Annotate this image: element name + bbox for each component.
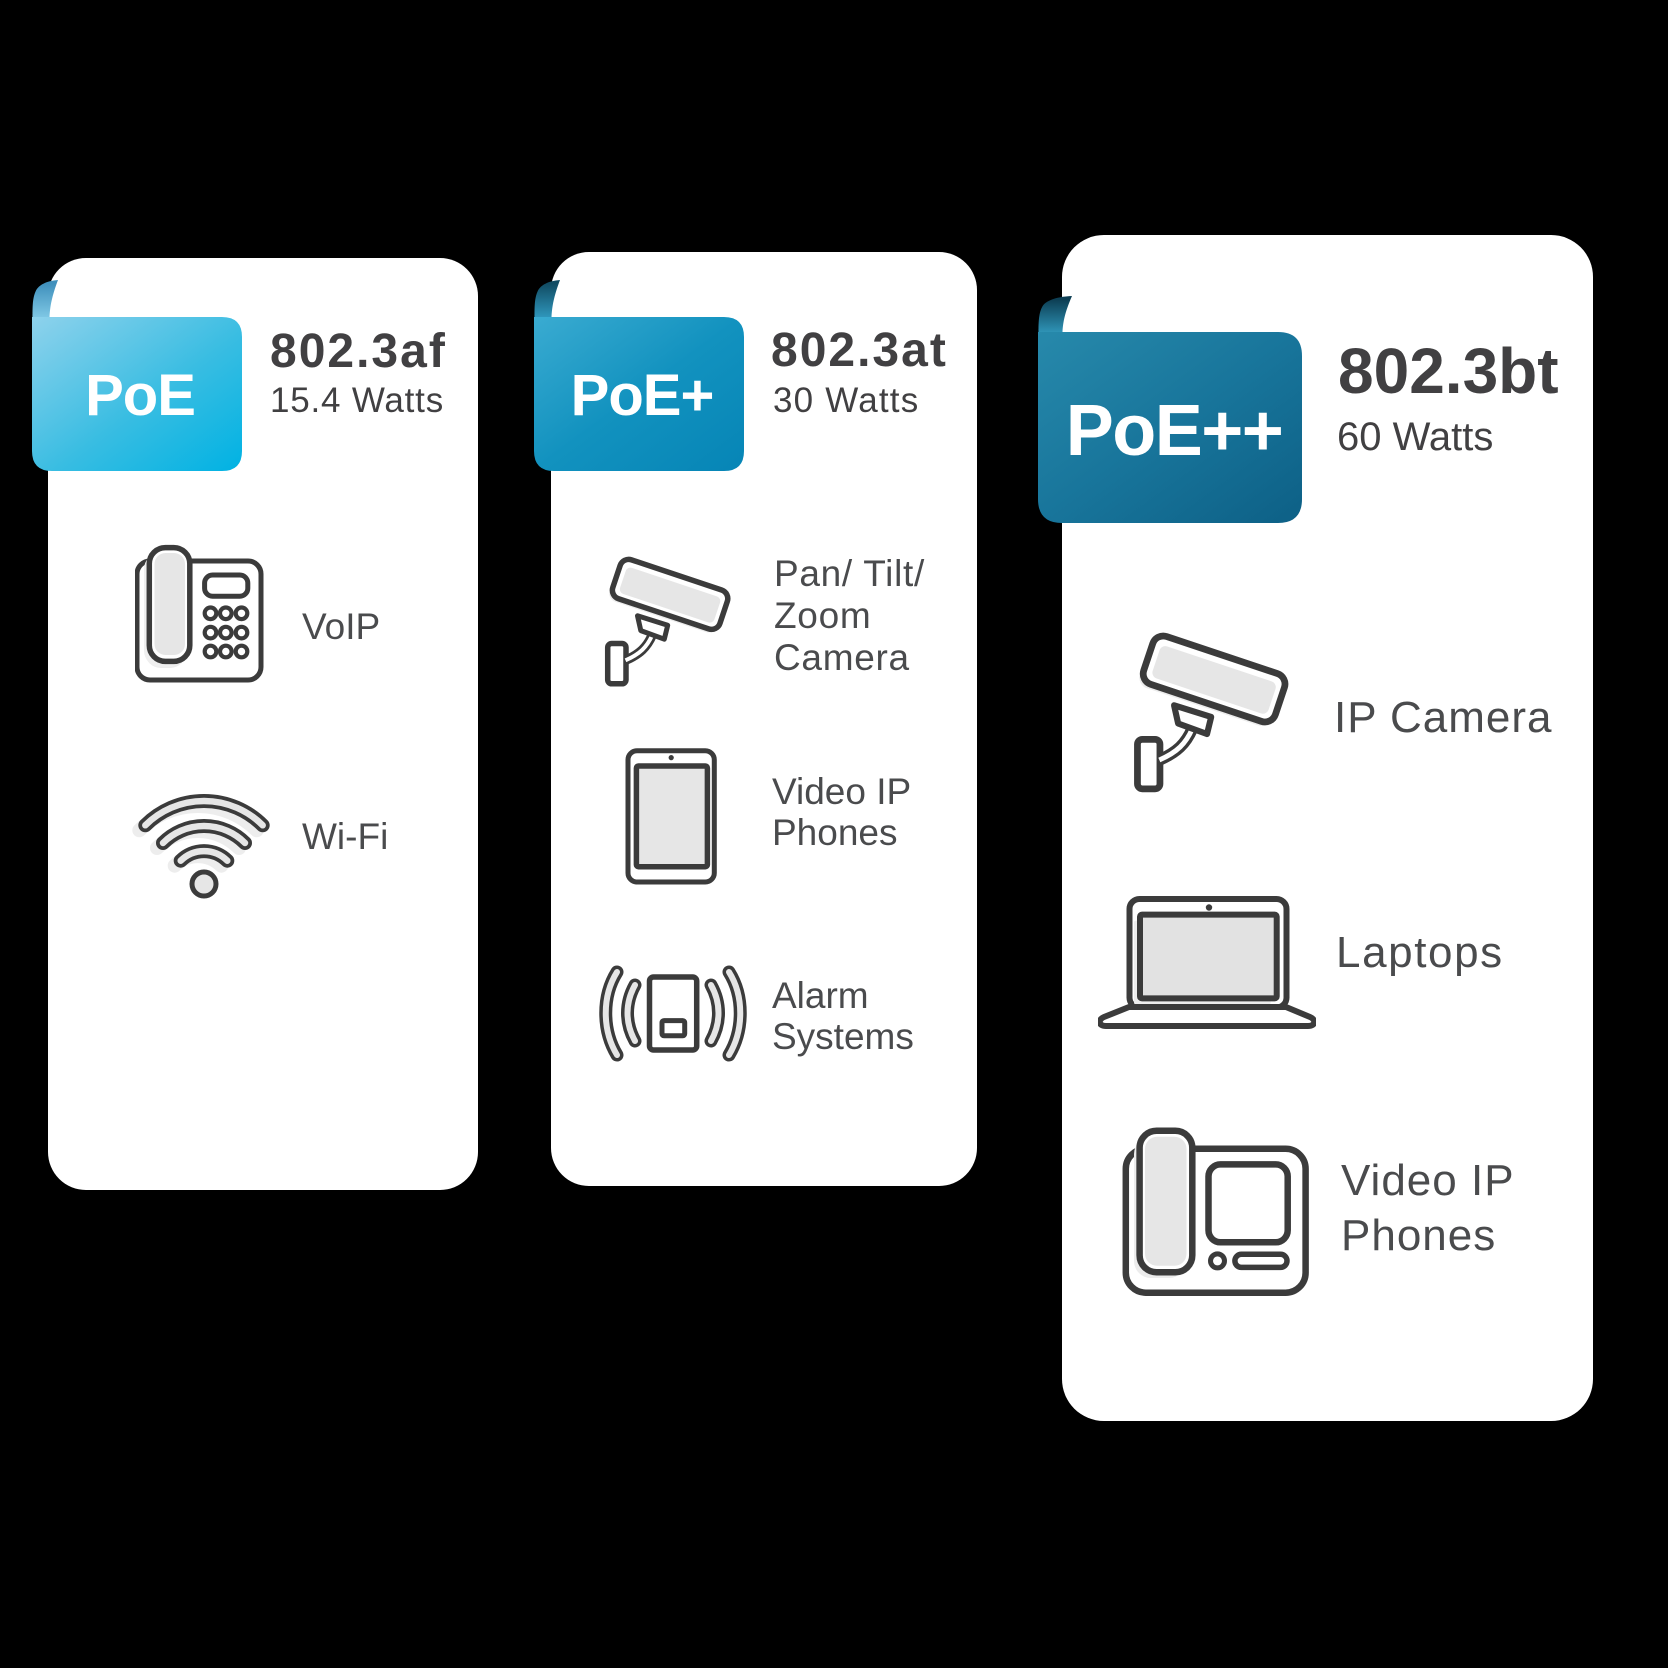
svg-text:PoE++: PoE++ [1066,391,1283,471]
svg-text:PoE: PoE [85,363,195,428]
svg-text:PoE+: PoE+ [571,363,714,428]
